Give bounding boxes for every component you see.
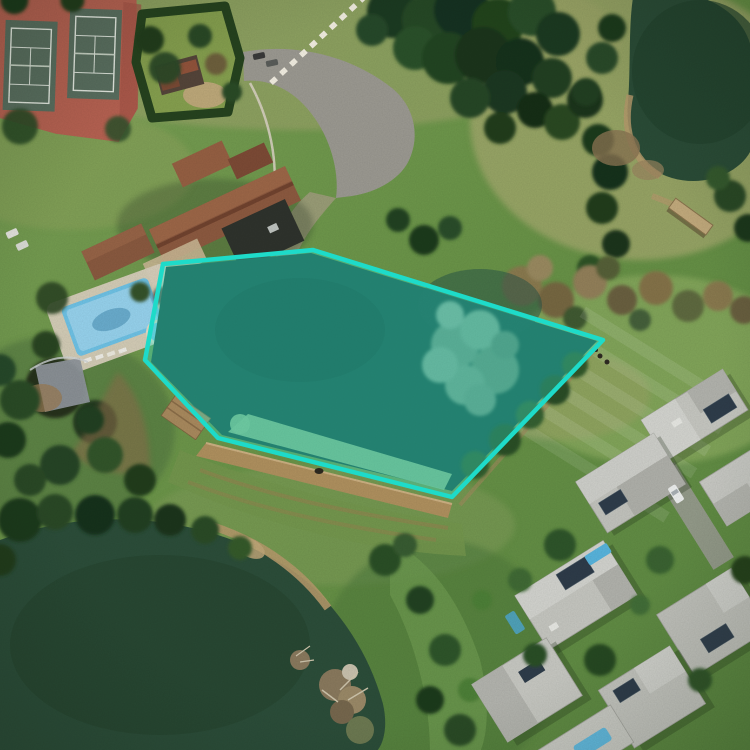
satellite-map-viewport[interactable]: [0, 0, 750, 750]
